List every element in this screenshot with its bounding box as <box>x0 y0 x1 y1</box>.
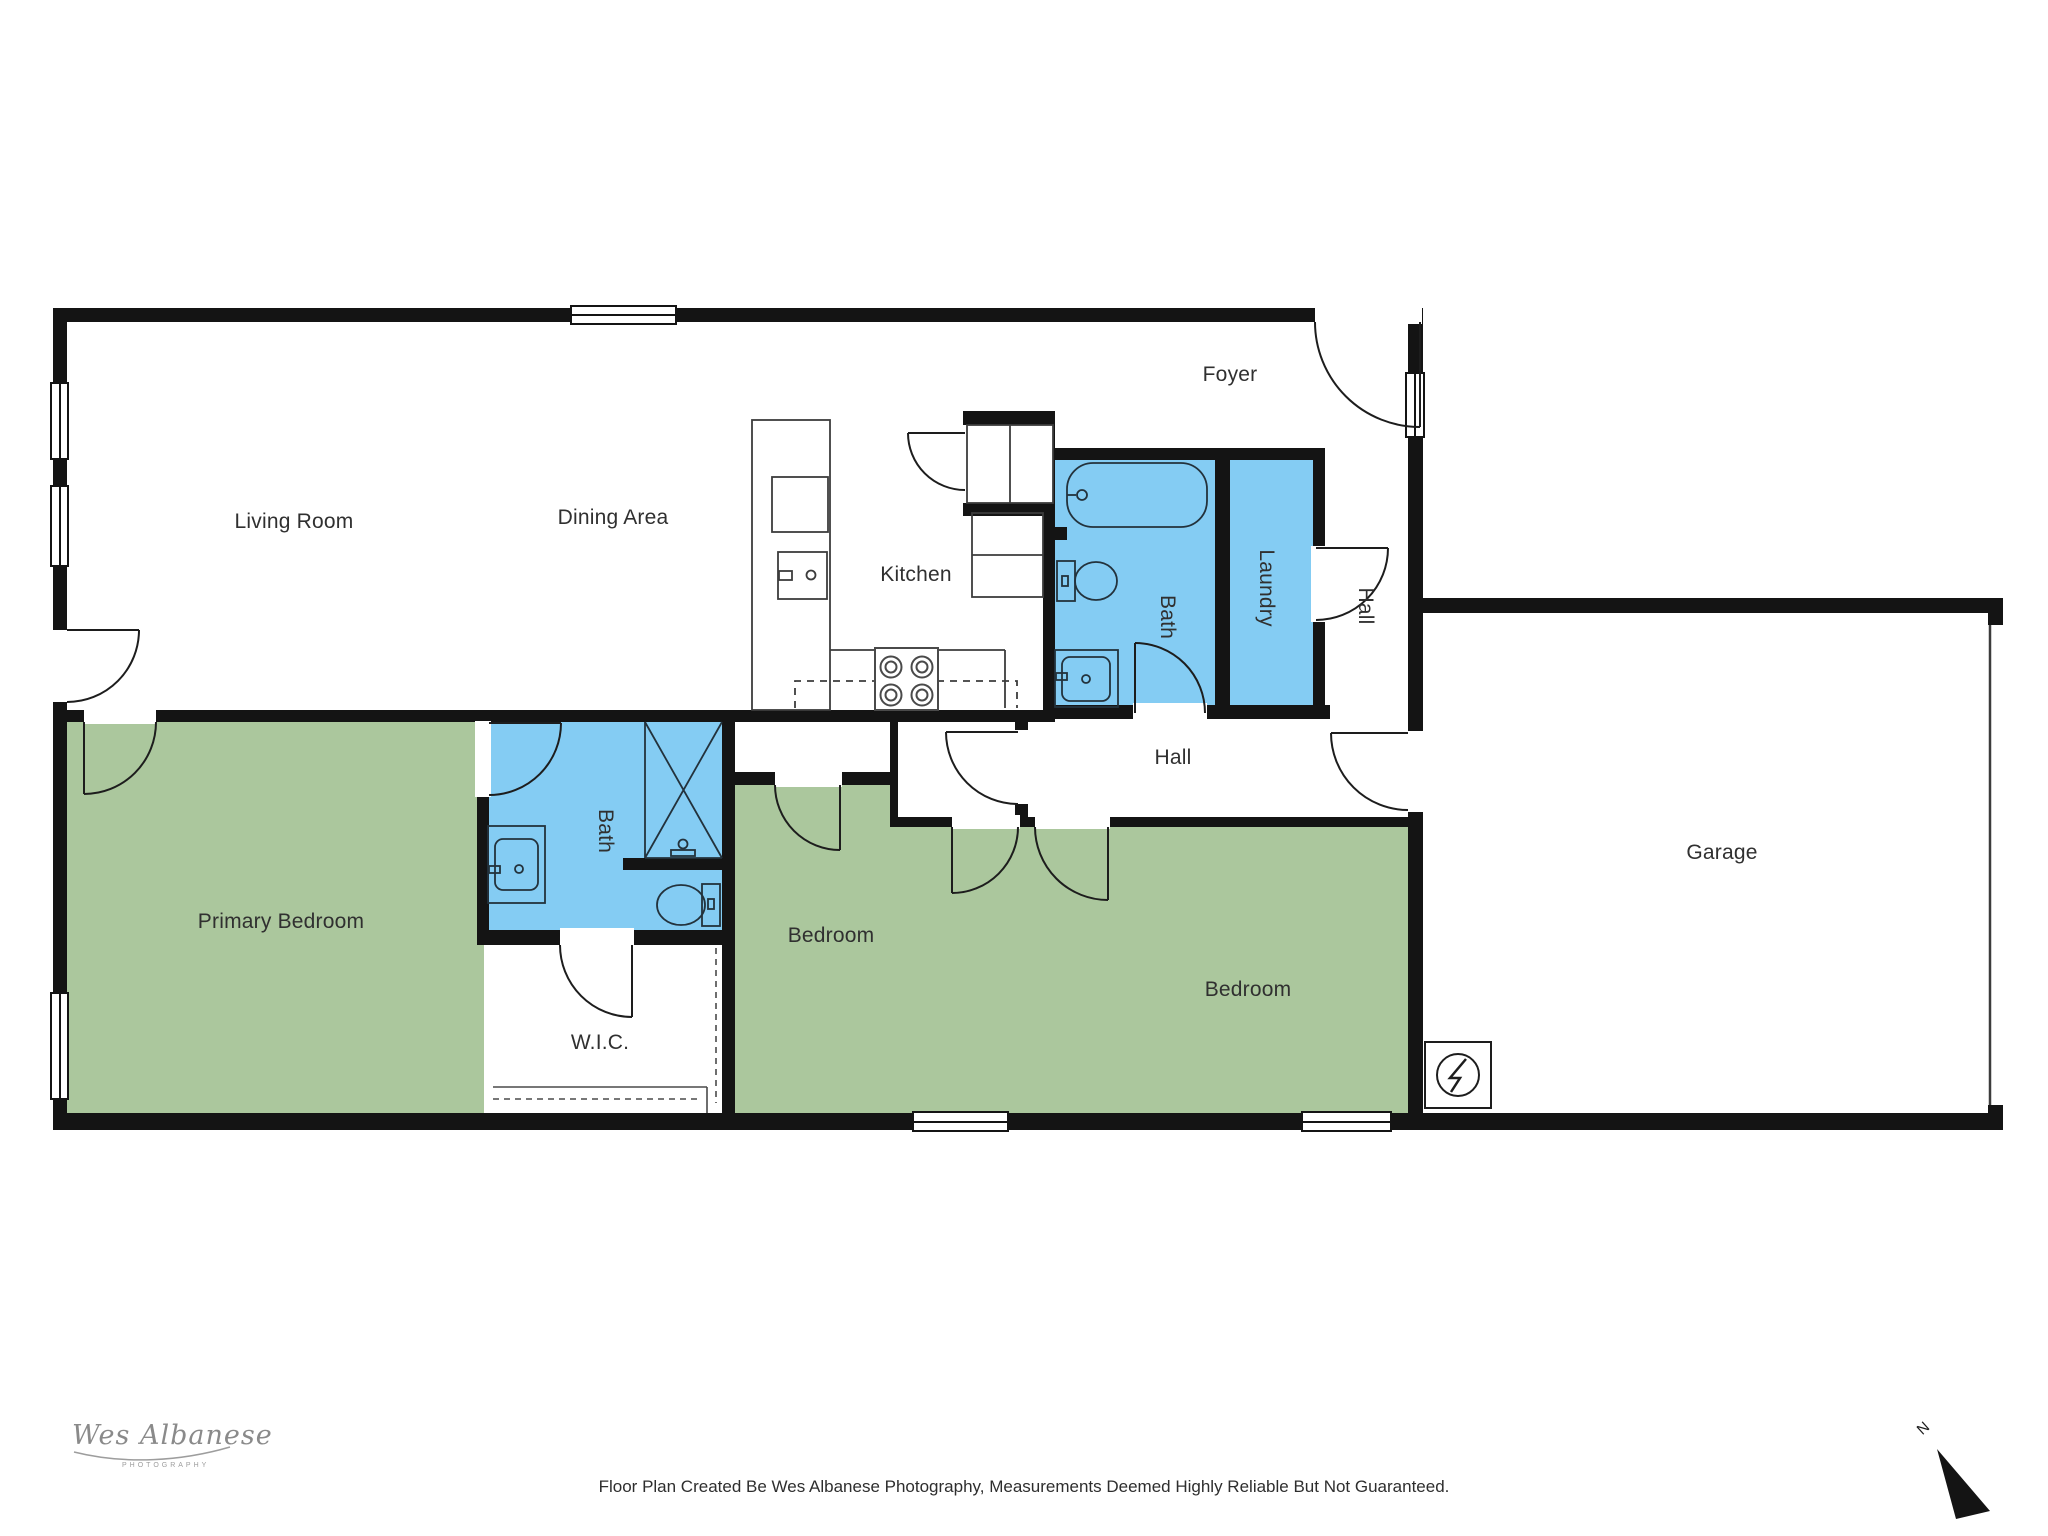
window <box>50 382 69 460</box>
door-arc <box>1331 733 1408 810</box>
room-fill-bedroom-right <box>1023 818 1413 1120</box>
room-label-hall: Hall <box>1155 746 1192 770</box>
door-arc <box>67 630 139 702</box>
kitchen-peninsula <box>752 420 830 710</box>
wall <box>623 858 722 870</box>
room-label-bedroom-middle: Bedroom <box>788 924 875 948</box>
kitchen-wall-cabinets <box>795 681 1017 708</box>
door-opening <box>51 630 69 702</box>
garage-door-opening <box>1986 625 2005 1105</box>
wall <box>1215 448 1230 715</box>
door-opening <box>775 770 842 787</box>
room-label-foyer: Foyer <box>1203 363 1258 387</box>
refrigerator <box>972 513 1043 597</box>
room-label-garage: Garage <box>1686 841 1757 865</box>
room-label-living: Living Room <box>235 510 354 534</box>
door-opening <box>1133 703 1207 721</box>
room-label-primary-bedroom: Primary Bedroom <box>198 910 364 934</box>
door-opening <box>1035 815 1110 829</box>
window <box>50 992 69 1100</box>
wall <box>1043 411 1055 712</box>
window <box>570 305 677 325</box>
window <box>912 1111 1009 1132</box>
door-opening <box>952 815 1020 829</box>
door-arc <box>908 433 965 490</box>
door-opening <box>1315 306 1422 324</box>
wall <box>67 710 1055 722</box>
kitchen-base-counter <box>830 650 1005 708</box>
room-label-hall-corridor: Hall <box>1353 588 1377 625</box>
door-opening <box>475 721 491 797</box>
closet-fill-b <box>898 716 1015 819</box>
closet-fill-a <box>735 716 890 774</box>
room-label-laundry: Laundry <box>1254 549 1278 626</box>
wall <box>722 710 735 1113</box>
wall <box>53 1113 1423 1130</box>
room-label-kitchen: Kitchen <box>880 563 951 587</box>
kitchen-sink <box>772 477 828 532</box>
wall <box>963 411 1055 425</box>
wall <box>1408 322 1423 1113</box>
room-label-wic: W.I.C. <box>571 1031 629 1055</box>
wall <box>1055 527 1067 540</box>
photographer-logo-subtitle: PHOTOGRAPHY <box>122 1462 209 1469</box>
dishwasher-icon <box>778 552 827 599</box>
room-label-dining: Dining Area <box>558 506 669 530</box>
floor-plan: Living Room Dining Area Kitchen Foyer Ba… <box>0 0 2048 1536</box>
stove-icon <box>875 648 938 710</box>
door-opening <box>1311 546 1327 622</box>
wall <box>1423 1113 2003 1130</box>
wall <box>1423 598 2003 613</box>
door-opening <box>84 708 156 724</box>
wall <box>1055 448 1320 460</box>
wall <box>890 710 898 827</box>
window <box>1301 1111 1392 1132</box>
room-fill-bath-upper <box>1050 455 1220 712</box>
door-opening <box>1406 731 1425 812</box>
door-opening <box>1013 730 1030 804</box>
door-opening <box>560 928 634 947</box>
door-arc <box>560 945 632 1017</box>
window <box>1405 372 1425 438</box>
photographer-logo: Wes Albanese <box>72 1420 273 1451</box>
north-label: N <box>1914 1419 1933 1439</box>
pantry-closet <box>967 425 1053 503</box>
room-label-bedroom-right: Bedroom <box>1205 978 1292 1002</box>
wall <box>57 308 1423 322</box>
wall <box>963 503 1055 516</box>
disclaimer-text: Floor Plan Created Be Wes Albanese Photo… <box>0 1477 2048 1497</box>
window <box>50 485 69 567</box>
electrical-panel-icon <box>1425 1042 1491 1108</box>
room-label-bath-upper: Bath <box>1155 595 1179 639</box>
room-label-bath-lower: Bath <box>593 809 617 853</box>
